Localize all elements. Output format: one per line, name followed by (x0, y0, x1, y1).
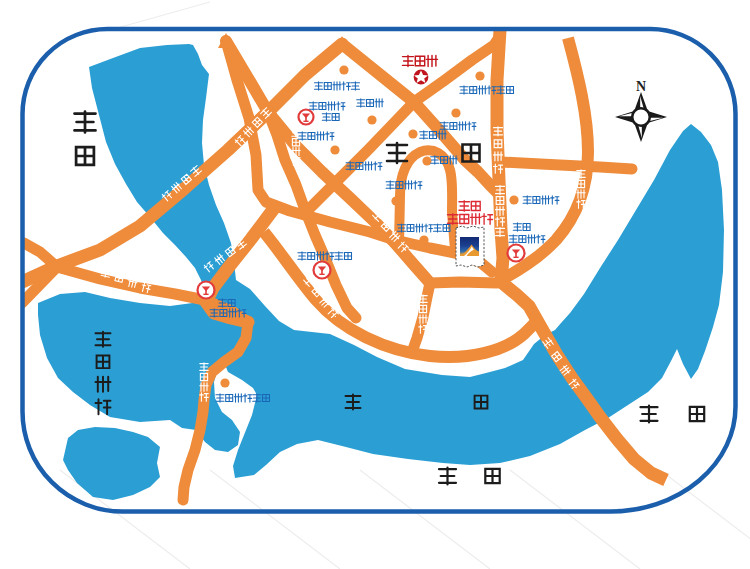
svg-text:N: N (636, 79, 646, 94)
